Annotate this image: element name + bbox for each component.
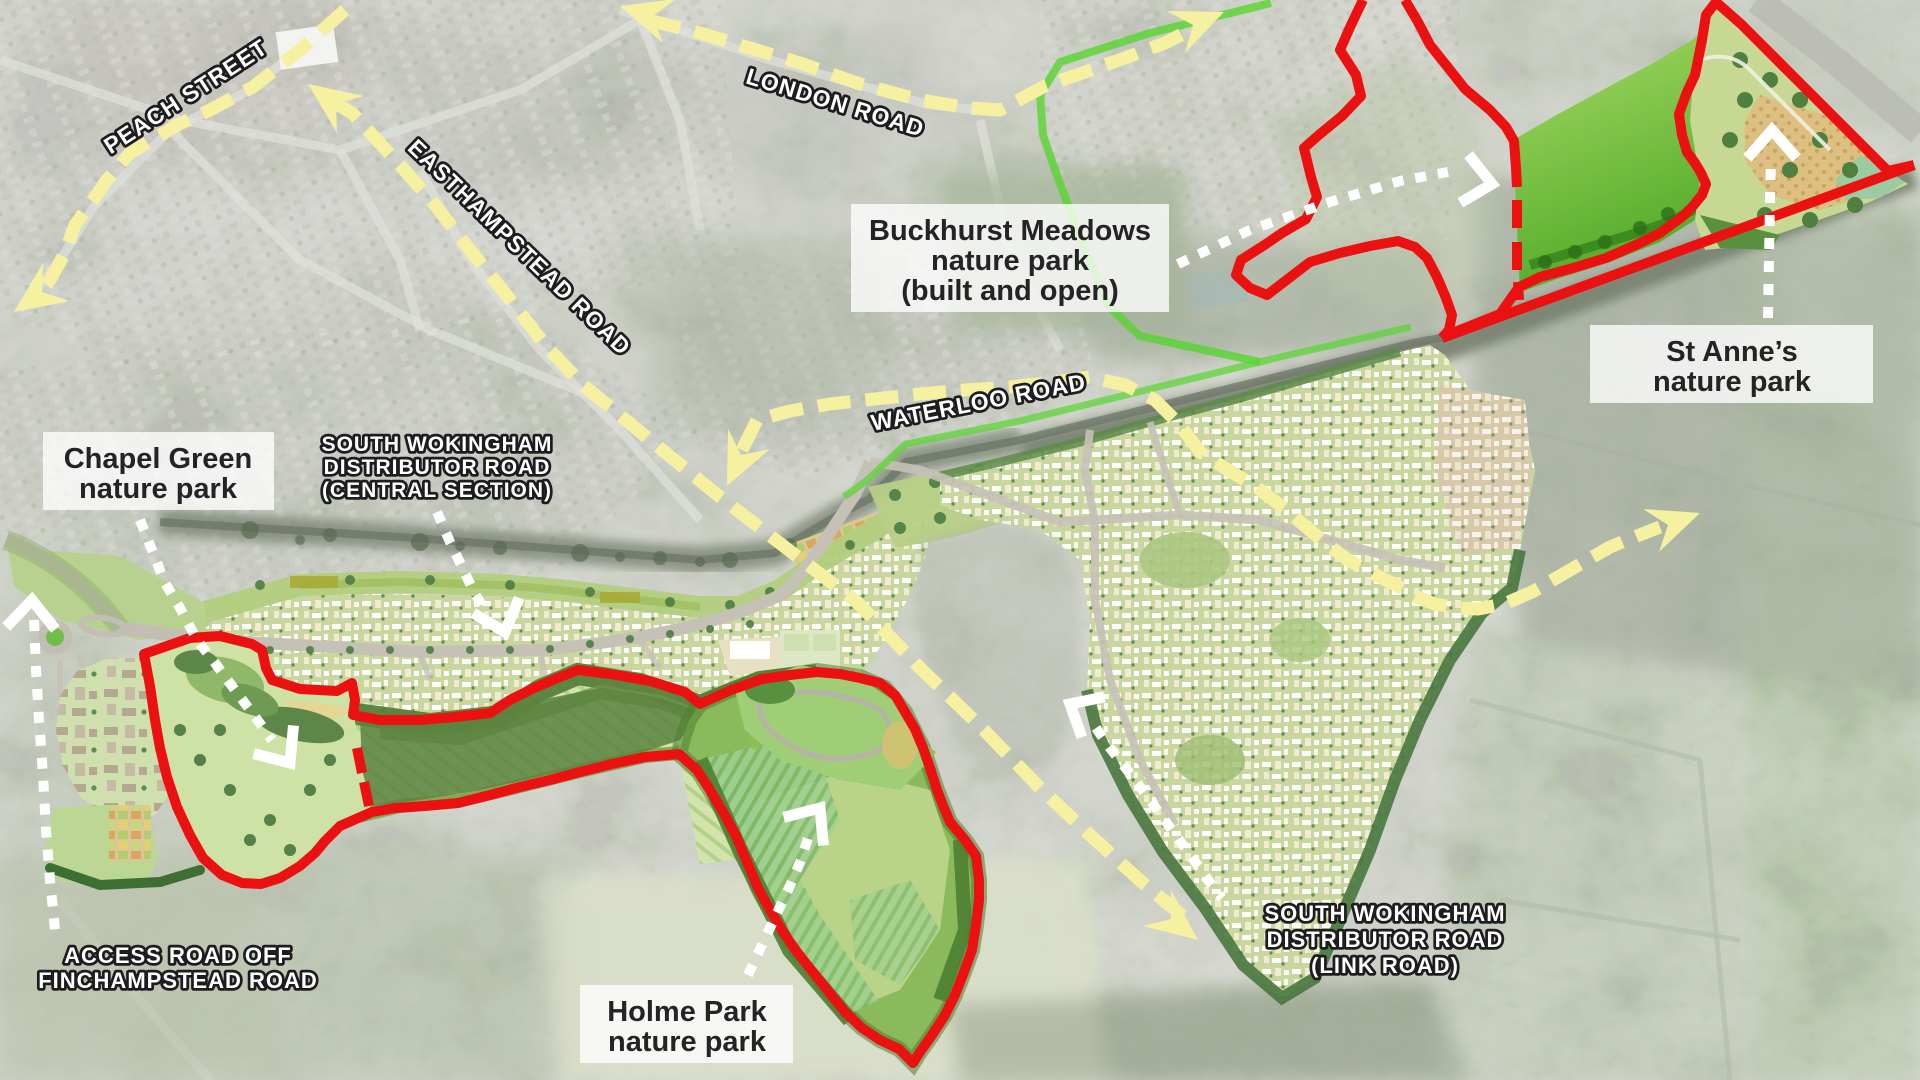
svg-text:Holme Park: Holme Park xyxy=(607,996,767,1028)
svg-text:Buckhurst Meadows: Buckhurst Meadows xyxy=(869,215,1151,247)
svg-text:(LINK ROAD): (LINK ROAD) xyxy=(1311,953,1459,978)
svg-text:Chapel Green: Chapel Green xyxy=(64,443,253,475)
svg-text:St Anne’s: St Anne’s xyxy=(1666,336,1798,368)
svg-text:(CENTRAL SECTION): (CENTRAL SECTION) xyxy=(322,479,552,502)
svg-text:nature park: nature park xyxy=(608,1026,767,1058)
svg-text:DISTRIBUTOR ROAD: DISTRIBUTOR ROAD xyxy=(1267,927,1504,952)
svg-text:nature park: nature park xyxy=(931,245,1090,277)
svg-text:SOUTH WOKINGHAM: SOUTH WOKINGHAM xyxy=(322,433,553,456)
svg-text:ACCESS ROAD OFF: ACCESS ROAD OFF xyxy=(64,943,292,968)
svg-text:nature park: nature park xyxy=(1653,366,1812,398)
svg-text:(built and open): (built and open) xyxy=(901,275,1118,307)
svg-text:DISTRIBUTOR ROAD: DISTRIBUTOR ROAD xyxy=(324,456,551,479)
svg-text:FINCHAMPSTEAD ROAD: FINCHAMPSTEAD ROAD xyxy=(38,968,318,993)
svg-text:nature park: nature park xyxy=(79,473,238,505)
svg-text:SOUTH WOKINGHAM: SOUTH WOKINGHAM xyxy=(1264,901,1505,926)
